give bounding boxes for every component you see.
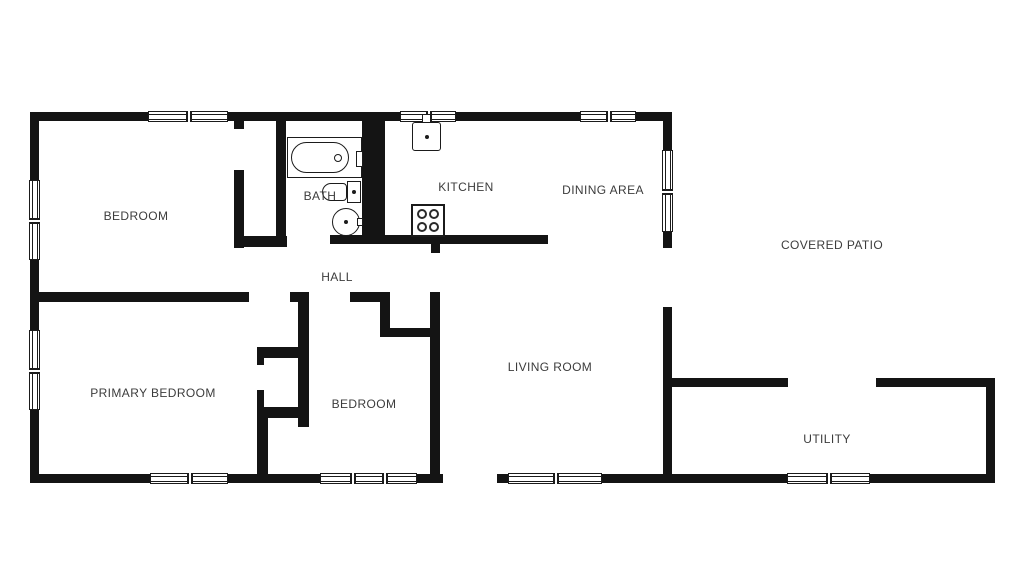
window-living-bottom bbox=[508, 473, 602, 484]
window-mullion-icon bbox=[29, 368, 40, 374]
toilet-flush-dot bbox=[352, 190, 356, 194]
window-mullion-icon bbox=[606, 111, 612, 122]
wall-bath-south-west bbox=[234, 236, 287, 247]
room-label-bedroom-middle: BEDROOM bbox=[332, 397, 397, 411]
room-label-bath: BATH bbox=[304, 189, 337, 203]
window-mullion-icon bbox=[382, 473, 388, 484]
floor-plan: BEDROOM BATH KITCHEN DINING AREA COVERED… bbox=[0, 0, 1024, 575]
window-primary-left bbox=[29, 330, 40, 410]
wall-utility-right bbox=[986, 378, 995, 483]
room-label-utility: UTILITY bbox=[803, 432, 850, 446]
bathtub-basin bbox=[291, 142, 349, 173]
window-mullion-icon bbox=[29, 218, 40, 224]
window-mullion-icon bbox=[186, 111, 192, 122]
wall-closet-bath bbox=[276, 121, 286, 238]
sink-drain-dot bbox=[344, 220, 348, 224]
kitchen-faucet-icon bbox=[422, 114, 431, 123]
wall-hall-east-stub bbox=[431, 244, 440, 253]
window-mullion-icon bbox=[553, 473, 559, 484]
sink-faucet-icon bbox=[357, 218, 363, 226]
wall-primarycloset-jamb-top bbox=[257, 347, 264, 365]
window-bedroom1-left bbox=[29, 180, 40, 260]
window-utility-bottom bbox=[787, 473, 870, 484]
window-dining-top bbox=[580, 111, 636, 122]
wall-exterior-top bbox=[30, 112, 672, 121]
wall-bath-kitchen bbox=[362, 121, 385, 243]
window-mullion-icon bbox=[662, 189, 673, 195]
window-dining-right bbox=[662, 150, 673, 232]
room-label-living-room: LIVING ROOM bbox=[508, 360, 592, 374]
burner-icon bbox=[417, 209, 427, 219]
room-label-primary-bedroom: PRIMARY BEDROOM bbox=[90, 386, 216, 400]
window-bedroom1-top bbox=[148, 111, 228, 122]
wall-utility-top-west bbox=[663, 378, 788, 387]
burner-icon bbox=[417, 222, 427, 232]
room-label-dining-area: DINING AREA bbox=[562, 183, 644, 197]
wall-exterior-right-lower bbox=[663, 307, 672, 483]
wall-primarycloset-jamb-bot bbox=[257, 390, 264, 418]
window-bedroom2-bottom bbox=[320, 473, 417, 484]
burner-icon bbox=[429, 209, 439, 219]
wall-hall-south bbox=[30, 292, 249, 302]
wall-utility-top-east bbox=[876, 378, 995, 387]
room-label-bedroom-top-left: BEDROOM bbox=[104, 209, 169, 223]
wall-bedroom2-right bbox=[430, 292, 440, 483]
wall-bedroom1-right-cap bbox=[234, 121, 244, 129]
room-label-kitchen: KITCHEN bbox=[438, 180, 493, 194]
window-primary-bottom bbox=[150, 473, 228, 484]
window-mullion-icon bbox=[826, 473, 832, 484]
burner-icon bbox=[429, 222, 439, 232]
kitchen-sink-drain-dot bbox=[425, 135, 429, 139]
room-label-hall: HALL bbox=[321, 270, 353, 284]
stove-burners-icon bbox=[411, 204, 445, 237]
window-mullion-icon bbox=[350, 473, 356, 484]
toilet-tank bbox=[347, 181, 361, 203]
pedestal-sink-icon bbox=[332, 208, 360, 236]
bathtub-faucet-icon bbox=[356, 151, 363, 167]
bathtub-drain-icon bbox=[334, 154, 342, 162]
wall-bedrooms-divider bbox=[298, 292, 309, 427]
room-label-covered-patio: COVERED PATIO bbox=[781, 238, 883, 252]
window-mullion-icon bbox=[187, 473, 193, 484]
wall-bedroom2-closet-left bbox=[257, 418, 268, 478]
bathtub-icon bbox=[287, 137, 362, 178]
kitchen-sink-icon bbox=[412, 122, 441, 151]
